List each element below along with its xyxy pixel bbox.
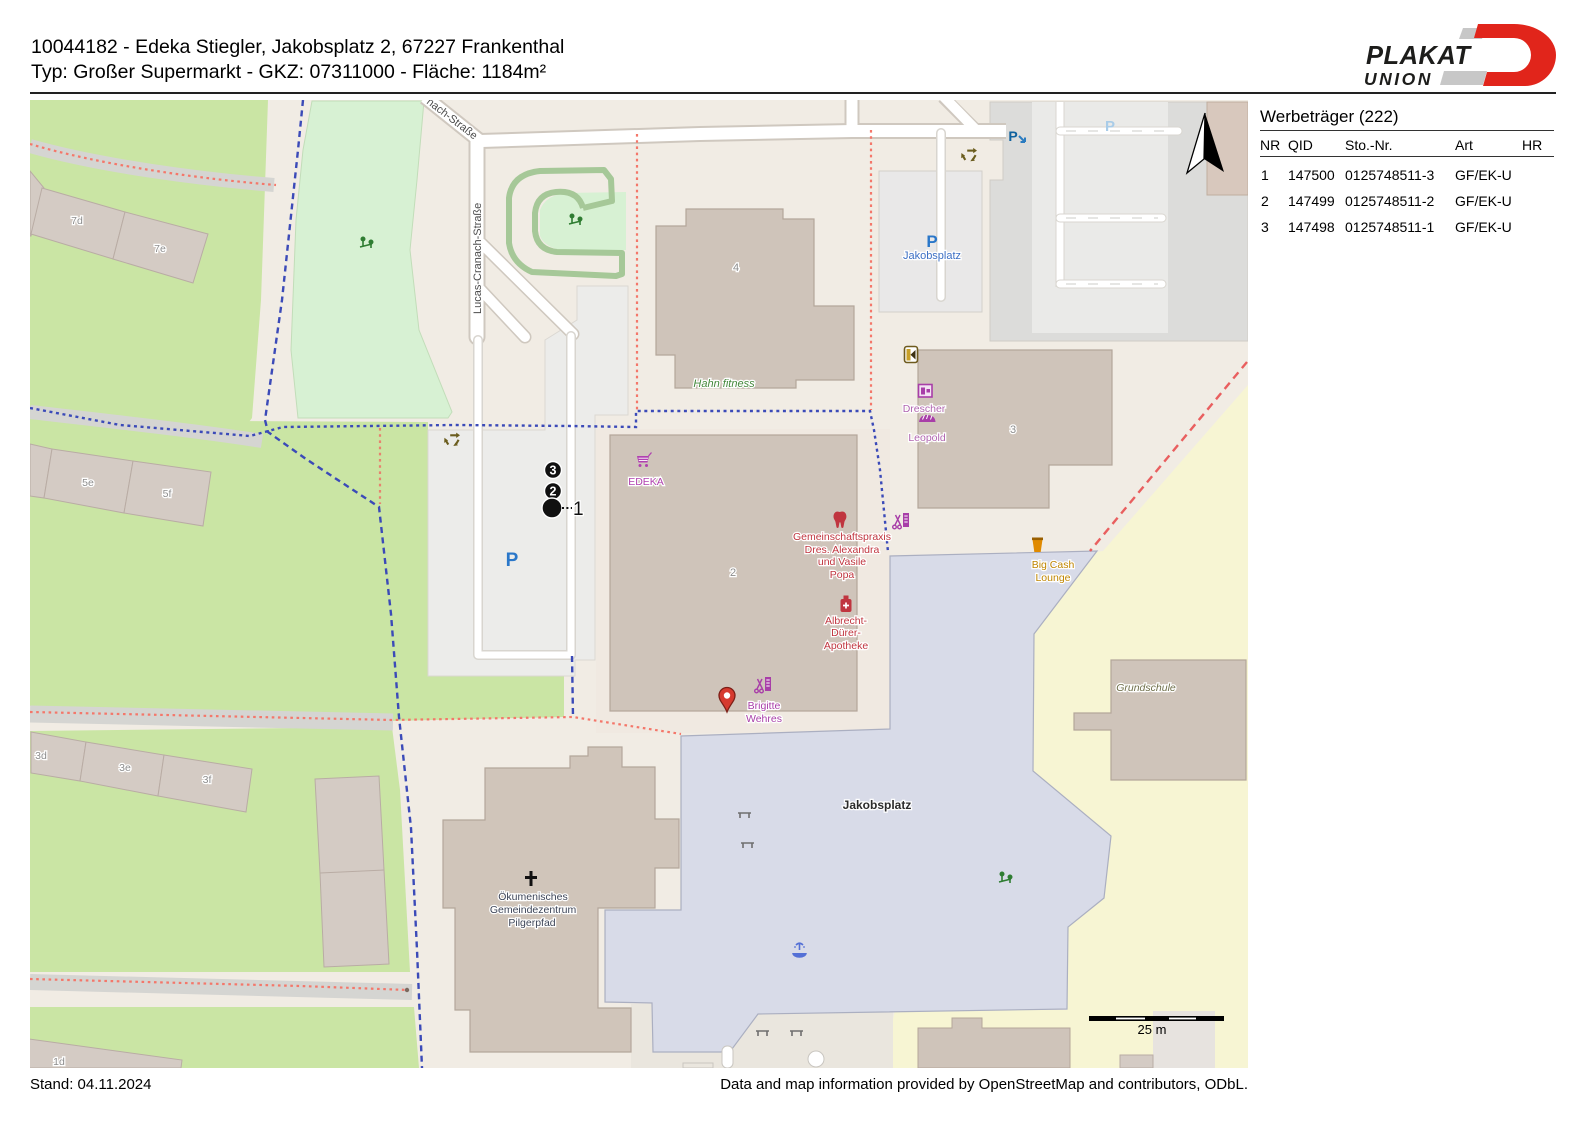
svg-text:Apotheke: Apotheke: [824, 640, 869, 652]
svg-text:Lucas-Cranach-Straße: Lucas-Cranach-Straße: [472, 203, 484, 314]
svg-text:UNION: UNION: [1364, 69, 1433, 89]
svg-text:Jakobsplatz: Jakobsplatz: [903, 250, 961, 262]
svg-text:7e: 7e: [154, 243, 166, 255]
svg-text:P: P: [1008, 128, 1017, 144]
svg-text:3e: 3e: [119, 762, 131, 774]
svg-text:P: P: [1105, 118, 1115, 135]
svg-text:Gemeindezentrum: Gemeindezentrum: [490, 904, 577, 916]
svg-text:P: P: [926, 232, 937, 251]
svg-text:Drescher: Drescher: [903, 403, 946, 415]
svg-text:Big Cash: Big Cash: [1032, 559, 1075, 571]
svg-text:3: 3: [1010, 424, 1016, 436]
svg-text:5e: 5e: [82, 477, 94, 489]
svg-text:Dürer-: Dürer-: [831, 627, 861, 639]
svg-text:Wehres: Wehres: [746, 713, 782, 725]
svg-text:3d: 3d: [35, 750, 47, 762]
svg-text:Lounge: Lounge: [1035, 572, 1070, 584]
svg-text:Pilgerpfad: Pilgerpfad: [508, 917, 555, 929]
svg-text:3f: 3f: [203, 774, 212, 786]
svg-text:PLAKAT: PLAKAT: [1366, 42, 1472, 70]
svg-text:P: P: [506, 550, 519, 571]
svg-text:Jakobsplatz: Jakobsplatz: [843, 798, 912, 812]
svg-text:Ökumenisches: Ökumenisches: [498, 891, 567, 903]
svg-text:1: 1: [573, 499, 584, 520]
svg-text:2: 2: [550, 485, 557, 499]
svg-text:Gemeinschaftspraxis: Gemeinschaftspraxis: [793, 531, 891, 543]
svg-text:Brigitte: Brigitte: [748, 700, 781, 712]
svg-text:2: 2: [730, 567, 736, 579]
svg-text:Dres. Alexandra: Dres. Alexandra: [805, 544, 880, 556]
svg-text:25 m: 25 m: [1138, 1022, 1167, 1037]
svg-text:Grundschule: Grundschule: [1116, 682, 1176, 694]
svg-text:5f: 5f: [163, 488, 172, 500]
svg-text:Hahn fitness: Hahn fitness: [693, 378, 755, 390]
svg-text:Leopold: Leopold: [908, 432, 946, 444]
svg-text:EDEKA: EDEKA: [628, 476, 664, 488]
svg-text:3: 3: [550, 464, 557, 478]
svg-text:4: 4: [733, 262, 739, 274]
svg-text:Albrecht-: Albrecht-: [825, 615, 868, 627]
svg-text:1d: 1d: [53, 1056, 65, 1068]
svg-text:7d: 7d: [71, 215, 83, 227]
svg-text:Popa: Popa: [830, 569, 855, 581]
svg-text:und Vasile: und Vasile: [818, 556, 866, 568]
